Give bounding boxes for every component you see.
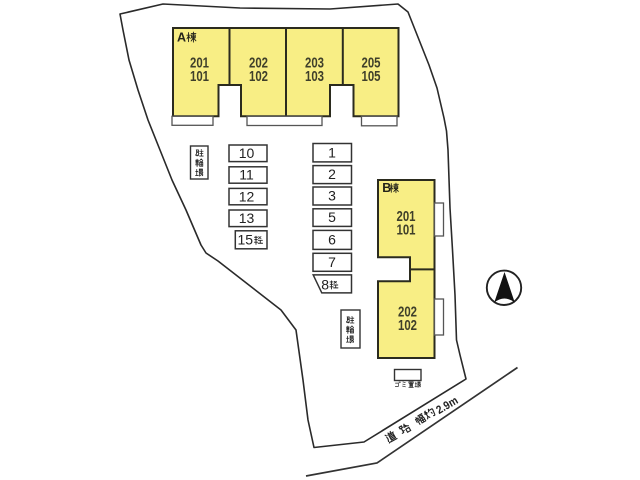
svg-text:12: 12	[239, 188, 255, 204]
svg-text:15: 15	[238, 232, 254, 248]
svg-text:11: 11	[239, 167, 254, 183]
svg-text:102: 102	[398, 317, 417, 334]
svg-text:13: 13	[239, 210, 255, 226]
svg-text:3: 3	[328, 188, 336, 204]
svg-text:5: 5	[328, 209, 336, 225]
svg-text:102: 102	[249, 68, 268, 85]
svg-text:8: 8	[321, 276, 329, 292]
svg-text:101: 101	[190, 68, 209, 85]
svg-text:2: 2	[328, 166, 336, 182]
svg-text:1: 1	[328, 145, 336, 161]
svg-text:A: A	[177, 31, 186, 45]
svg-text:10: 10	[239, 145, 255, 161]
svg-text:7: 7	[328, 254, 336, 270]
svg-text:103: 103	[305, 68, 324, 85]
svg-text:101: 101	[397, 222, 416, 239]
svg-text:105: 105	[362, 68, 381, 85]
svg-text:6: 6	[328, 232, 336, 248]
svg-text:B: B	[382, 181, 391, 195]
